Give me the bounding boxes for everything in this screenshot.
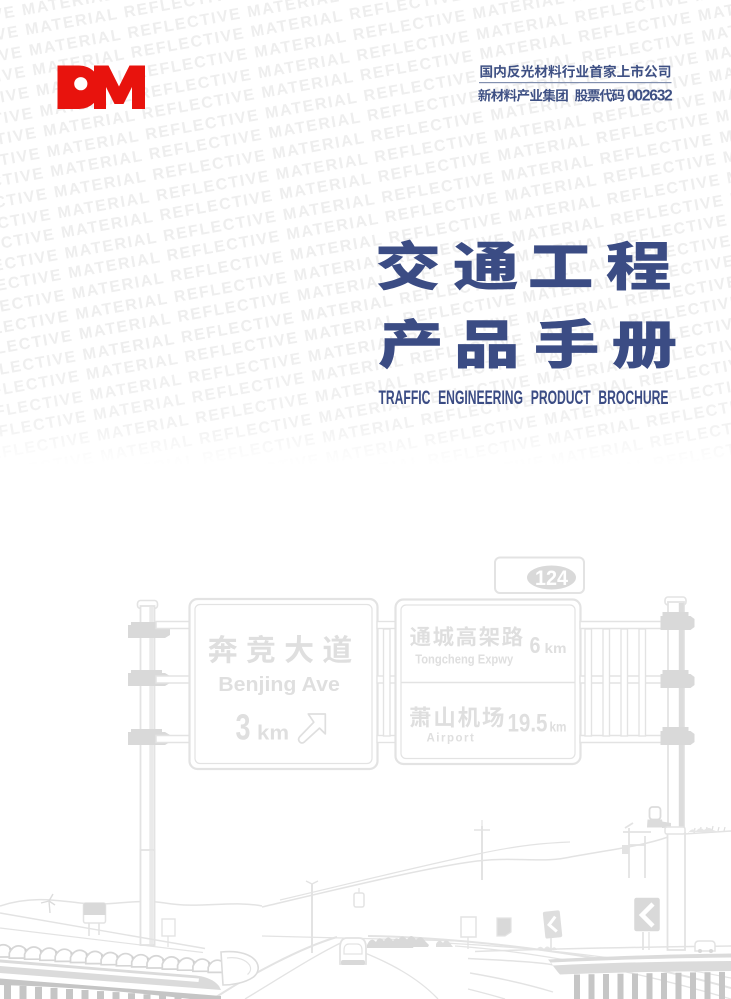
- svg-text:km: km: [545, 641, 567, 656]
- svg-text:002632: 002632: [627, 87, 673, 104]
- svg-text:Airport: Airport: [427, 733, 476, 745]
- svg-text:19.5: 19.5: [508, 710, 548, 738]
- svg-text:km: km: [550, 720, 567, 735]
- svg-text:TRAFFIC ENGINEERING PRODUCT BR: TRAFFIC ENGINEERING PRODUCT BROCHURE: [379, 387, 669, 409]
- svg-text:km: km: [257, 723, 289, 745]
- svg-text:Tongcheng Expwy: Tongcheng Expwy: [415, 653, 513, 667]
- svg-text:Benjing Ave: Benjing Ave: [218, 673, 339, 696]
- svg-text:6: 6: [530, 632, 541, 658]
- svg-text:3: 3: [236, 707, 251, 748]
- svg-text:124: 124: [535, 567, 568, 590]
